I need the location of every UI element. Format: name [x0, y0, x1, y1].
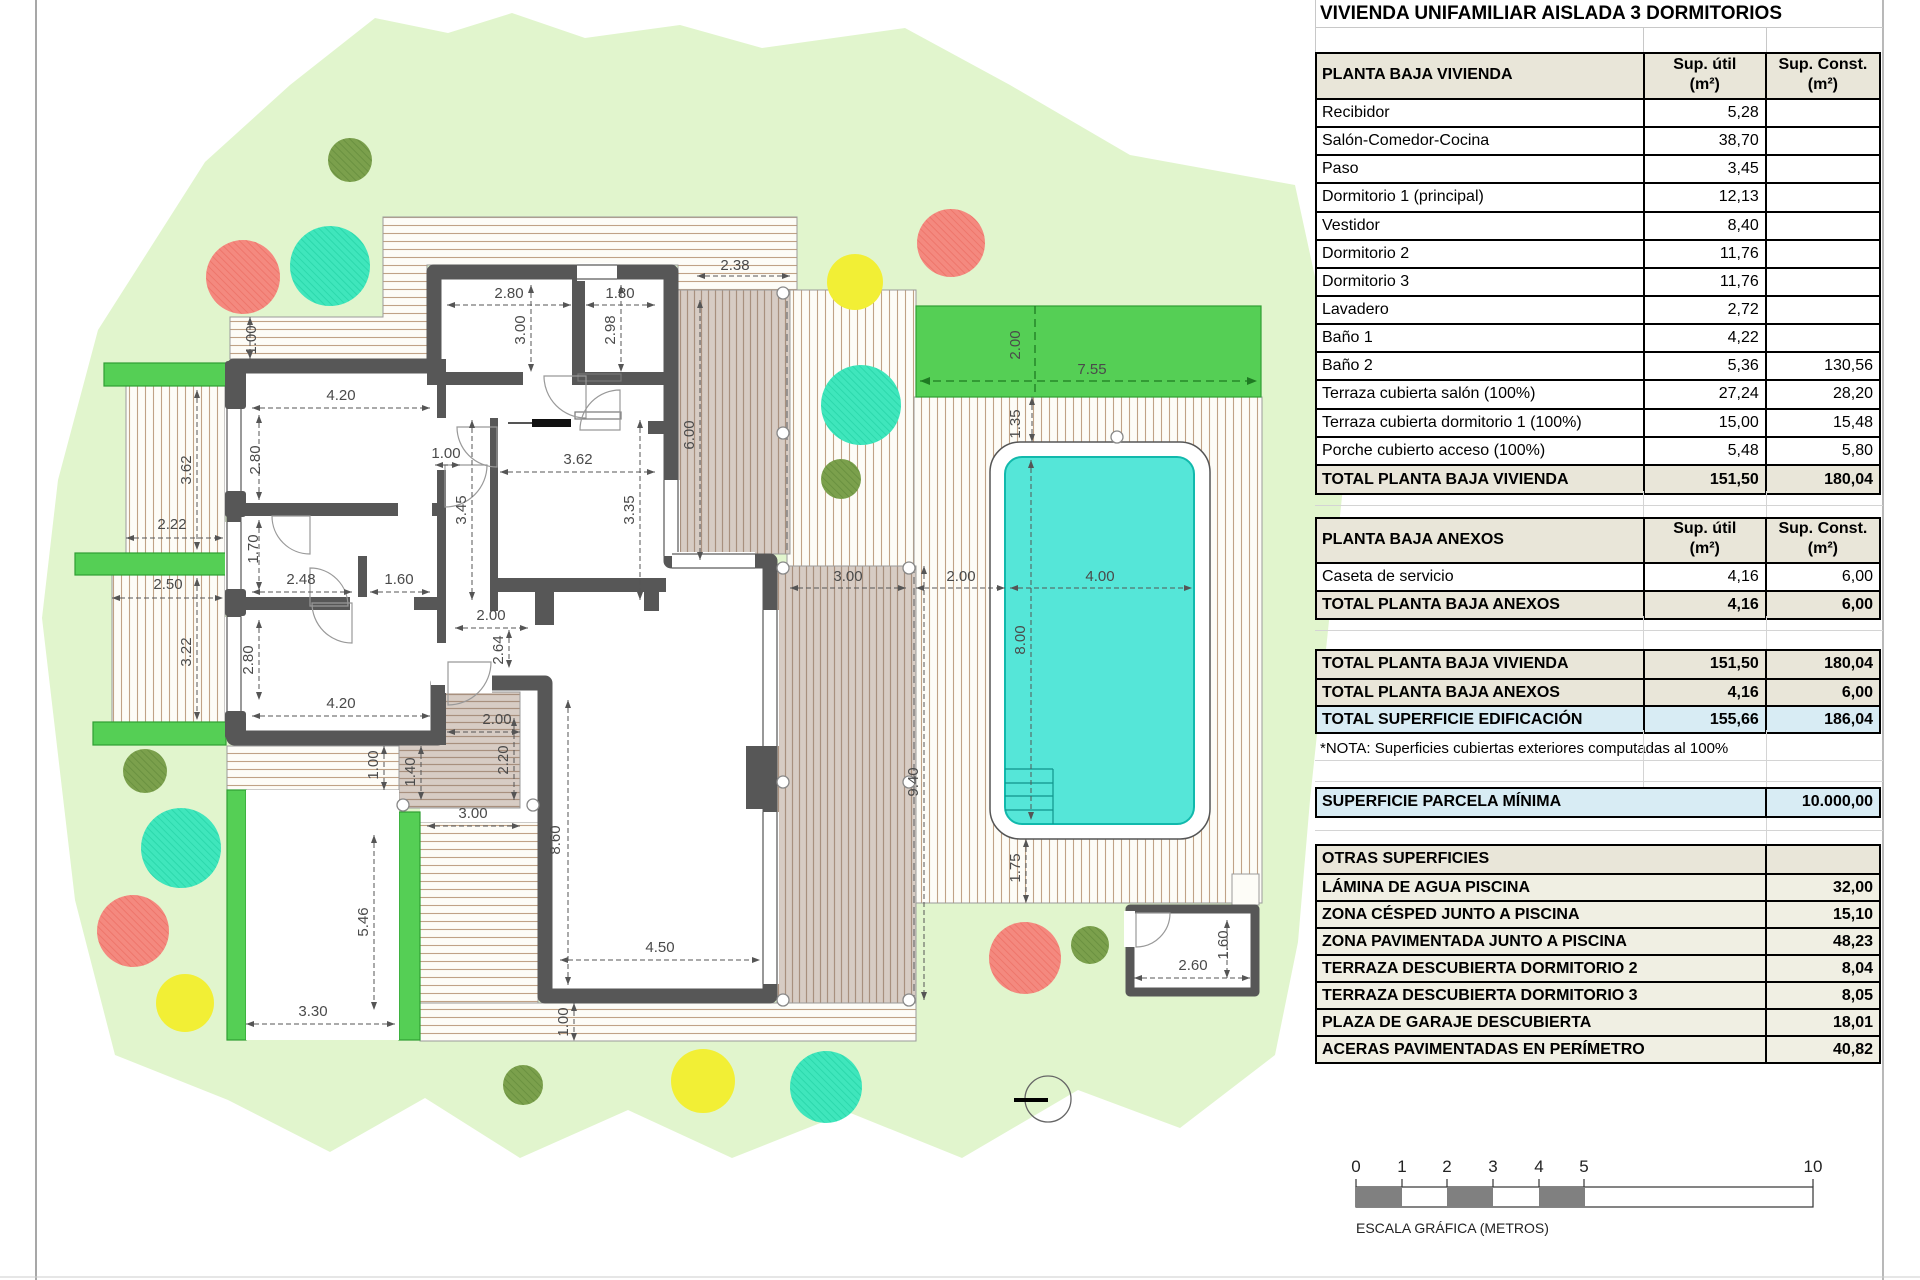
svg-text:2.38: 2.38	[720, 257, 749, 274]
svg-text:4: 4	[1534, 1157, 1543, 1176]
svg-text:1.80: 1.80	[605, 285, 634, 302]
svg-text:1.70: 1.70	[245, 534, 262, 563]
svg-text:5.46: 5.46	[355, 907, 372, 936]
svg-text:2.64: 2.64	[490, 635, 507, 664]
svg-text:ESCALA GRÁFICA (METROS): ESCALA GRÁFICA (METROS)	[1356, 1220, 1549, 1236]
svg-text:2.00: 2.00	[476, 607, 505, 624]
svg-text:2.98: 2.98	[602, 315, 619, 344]
svg-text:1.40: 1.40	[402, 757, 419, 786]
svg-text:2.50: 2.50	[153, 576, 182, 593]
svg-text:3.45: 3.45	[453, 495, 470, 524]
svg-text:2: 2	[1442, 1157, 1451, 1176]
svg-text:6.00: 6.00	[681, 420, 698, 449]
svg-text:4.00: 4.00	[1085, 568, 1114, 585]
svg-text:3: 3	[1488, 1157, 1497, 1176]
svg-text:1.00: 1.00	[555, 1007, 572, 1036]
svg-text:2.00: 2.00	[1007, 330, 1024, 359]
svg-text:3.62: 3.62	[178, 455, 195, 484]
svg-text:2.22: 2.22	[157, 516, 186, 533]
svg-text:3.30: 3.30	[298, 1003, 327, 1020]
svg-text:10: 10	[1804, 1157, 1823, 1176]
svg-text:3.22: 3.22	[178, 637, 195, 666]
svg-text:4.20: 4.20	[326, 387, 355, 404]
svg-text:5: 5	[1579, 1157, 1588, 1176]
svg-text:3.62: 3.62	[563, 451, 592, 468]
svg-text:9.40: 9.40	[905, 767, 922, 796]
svg-text:0: 0	[1351, 1157, 1360, 1176]
svg-text:7.55: 7.55	[1077, 361, 1106, 378]
svg-text:3.00: 3.00	[833, 568, 862, 585]
svg-text:1.00: 1.00	[365, 750, 382, 779]
svg-text:8.60: 8.60	[547, 825, 564, 854]
svg-text:8.00: 8.00	[1012, 625, 1029, 654]
svg-text:3.00: 3.00	[458, 805, 487, 822]
svg-text:2.00: 2.00	[946, 568, 975, 585]
svg-text:2.80: 2.80	[247, 445, 264, 474]
svg-text:1.00: 1.00	[431, 445, 460, 462]
svg-text:4.50: 4.50	[645, 939, 674, 956]
svg-text:1.00: 1.00	[243, 325, 260, 354]
svg-text:4.20: 4.20	[326, 695, 355, 712]
svg-text:3.00: 3.00	[512, 315, 529, 344]
svg-text:1.35: 1.35	[1007, 409, 1024, 438]
svg-text:1.75: 1.75	[1007, 853, 1024, 882]
svg-text:1.60: 1.60	[1215, 930, 1232, 959]
svg-text:2.00: 2.00	[482, 711, 511, 728]
svg-text:2.60: 2.60	[1178, 957, 1207, 974]
svg-text:2.48: 2.48	[286, 571, 315, 588]
svg-text:2.20: 2.20	[495, 745, 512, 774]
svg-text:1.60: 1.60	[384, 571, 413, 588]
svg-text:2.80: 2.80	[494, 285, 523, 302]
svg-text:1: 1	[1397, 1157, 1406, 1176]
svg-text:3.35: 3.35	[621, 495, 638, 524]
svg-text:2.80: 2.80	[240, 645, 257, 674]
